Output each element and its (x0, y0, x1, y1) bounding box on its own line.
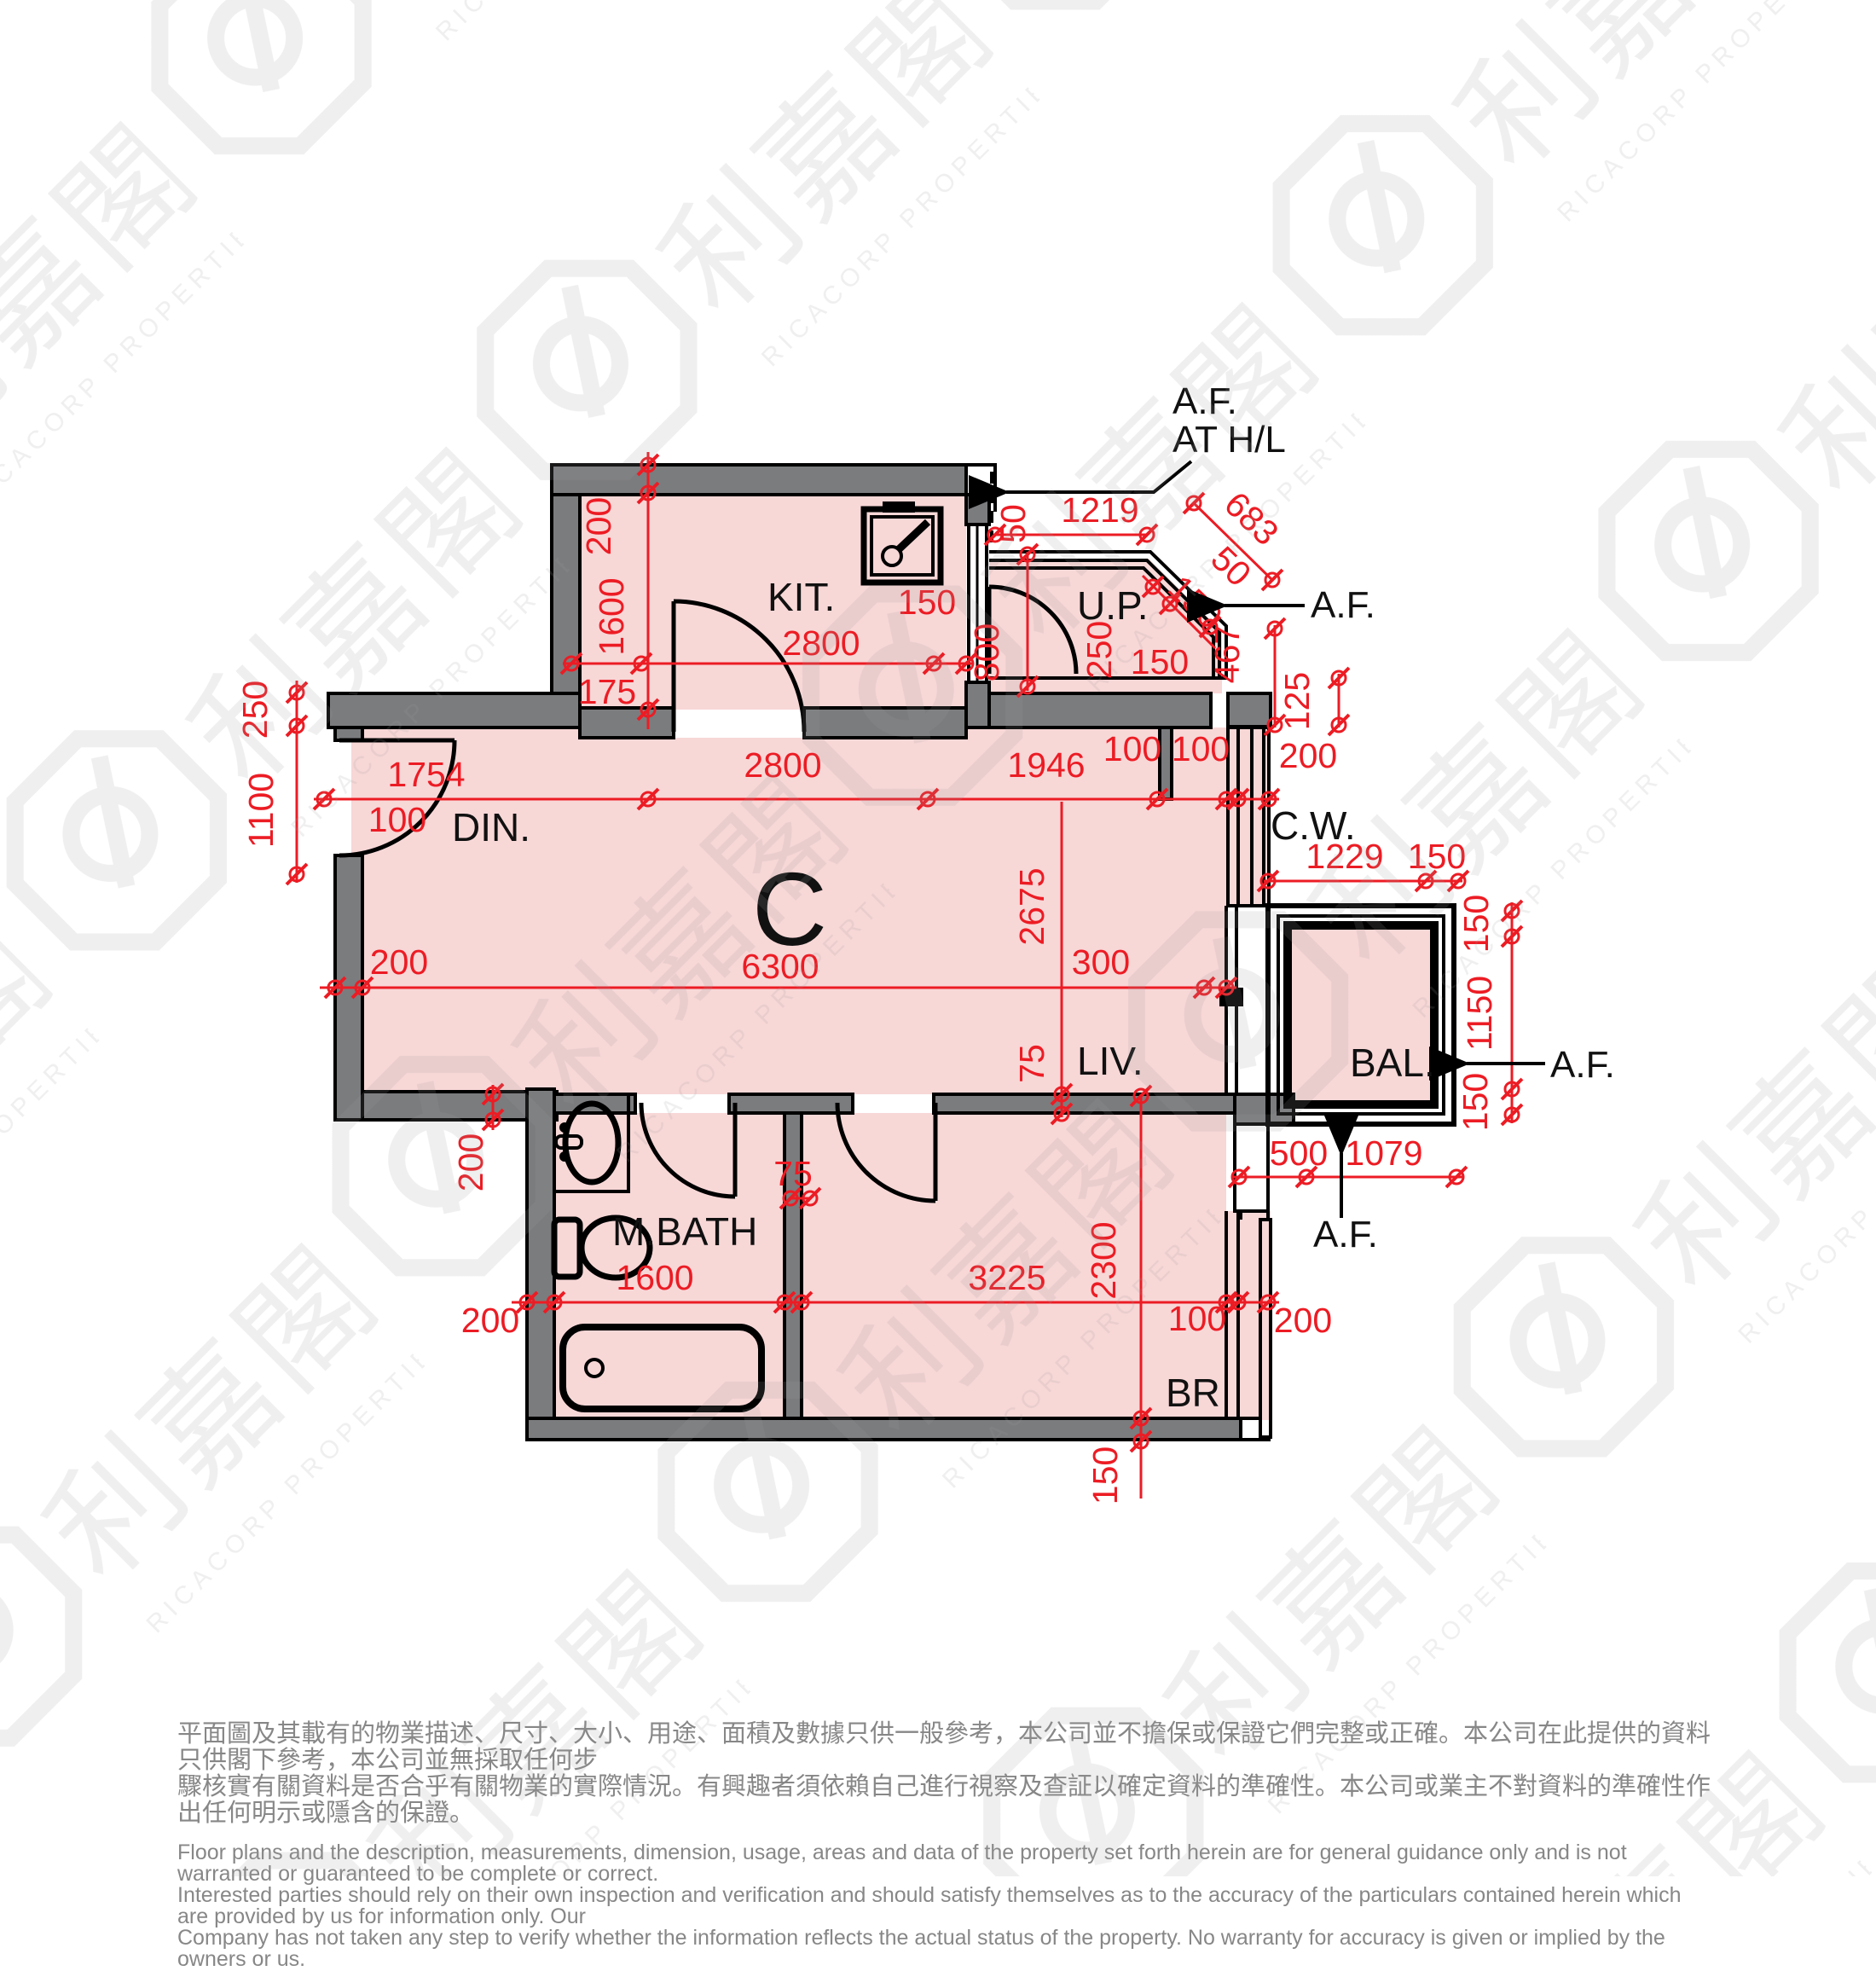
room-label-living: LIV. (1077, 1039, 1144, 1083)
dimension-label: 2300 (1084, 1221, 1123, 1299)
af-label-up: A.F. (1311, 584, 1375, 626)
dimension-label: 1219 (1061, 490, 1138, 530)
af-label-bay: A.F. (1313, 1214, 1378, 1255)
dimension-label: 150 (898, 583, 956, 622)
dimension-label: 200 (461, 1301, 519, 1340)
dimension-label: 2675 (1012, 867, 1051, 945)
af-label-balcony: A.F. (1550, 1044, 1615, 1086)
dimension-label: 200 (1279, 736, 1337, 775)
dimension-label: 75 (1012, 1044, 1051, 1083)
dimension-label: 150 (1086, 1446, 1125, 1504)
dimension-label: 175 (578, 672, 636, 711)
dimension-label: 250 (235, 681, 275, 739)
floor-plan-page: 平面圖及其載有的物業描述、尺寸、大小、用途、面積及數據只供一般參考，本公司並不擔… (0, 0, 1876, 1876)
dimension-label: 1600 (592, 577, 631, 655)
kitchen-sink-icon (864, 501, 941, 583)
dimension-label: 250 (1080, 621, 1119, 679)
unit-label: C (752, 851, 827, 967)
dimension-label: 150 (1408, 837, 1466, 876)
dimension-label: 300 (1072, 942, 1130, 982)
dimension-label: 1150 (1460, 976, 1499, 1051)
room-label-dining: DIN. (452, 805, 530, 849)
room-label-utility-platform: U.P. (1077, 583, 1149, 628)
dimension-label: 2800 (782, 623, 860, 663)
dimension-label: 200 (451, 1133, 490, 1191)
dimension-label: 50 (993, 504, 1033, 543)
disclaimer-en-line2: Interested parties should rely on their … (177, 1885, 1712, 1928)
dimension-label: 1079 (1345, 1133, 1422, 1173)
dimension-label: 100 (1172, 729, 1230, 768)
dimension-label: 1100 (241, 773, 281, 848)
floor-plan-svg: 利嘉閣 RICACORP PROPERTIES (0, 0, 1876, 1876)
dimension-label: 1754 (387, 755, 465, 794)
af-at-hl-label-line2: AT H/L (1172, 419, 1286, 461)
disclaimer-en-line3: Company has not taken any step to verify… (177, 1928, 1712, 1970)
dimension-label: 1600 (616, 1258, 693, 1297)
dimension-label: 125 (1277, 672, 1317, 730)
dimension-label: 100 (1168, 1299, 1226, 1338)
dimension-label: 500 (1270, 1133, 1328, 1173)
dimension-label: 75 (773, 1154, 813, 1193)
room-label-balcony: BAL. (1350, 1041, 1435, 1085)
dimension-label: 100 (1103, 729, 1161, 768)
dimension-label: 50 (1203, 539, 1259, 594)
room-label-curtain-wall: C.W. (1271, 803, 1356, 848)
dimension-label: 150 (1456, 895, 1496, 953)
dimension-label: 467 (1207, 625, 1247, 683)
dimension-label: 800 (967, 623, 1006, 681)
room-label-bedroom: BR (1166, 1371, 1220, 1415)
dimension-label: 2800 (744, 745, 821, 785)
dimension-label: 100 (368, 800, 426, 839)
dimension-label: 200 (579, 497, 618, 555)
dimension-label: 200 (370, 942, 428, 982)
dimension-label: 3225 (968, 1258, 1045, 1297)
dimension-label: 150 (1456, 1073, 1495, 1131)
dimension-label: 200 (1274, 1301, 1332, 1340)
af-at-hl-label-line1: A.F. (1172, 380, 1237, 422)
dimension-label: 1946 (1007, 745, 1085, 785)
room-label-kitchen: KIT. (767, 575, 835, 619)
dimension-label: 150 (1131, 642, 1189, 681)
room-label-master-bath: M.BATH (612, 1209, 757, 1254)
